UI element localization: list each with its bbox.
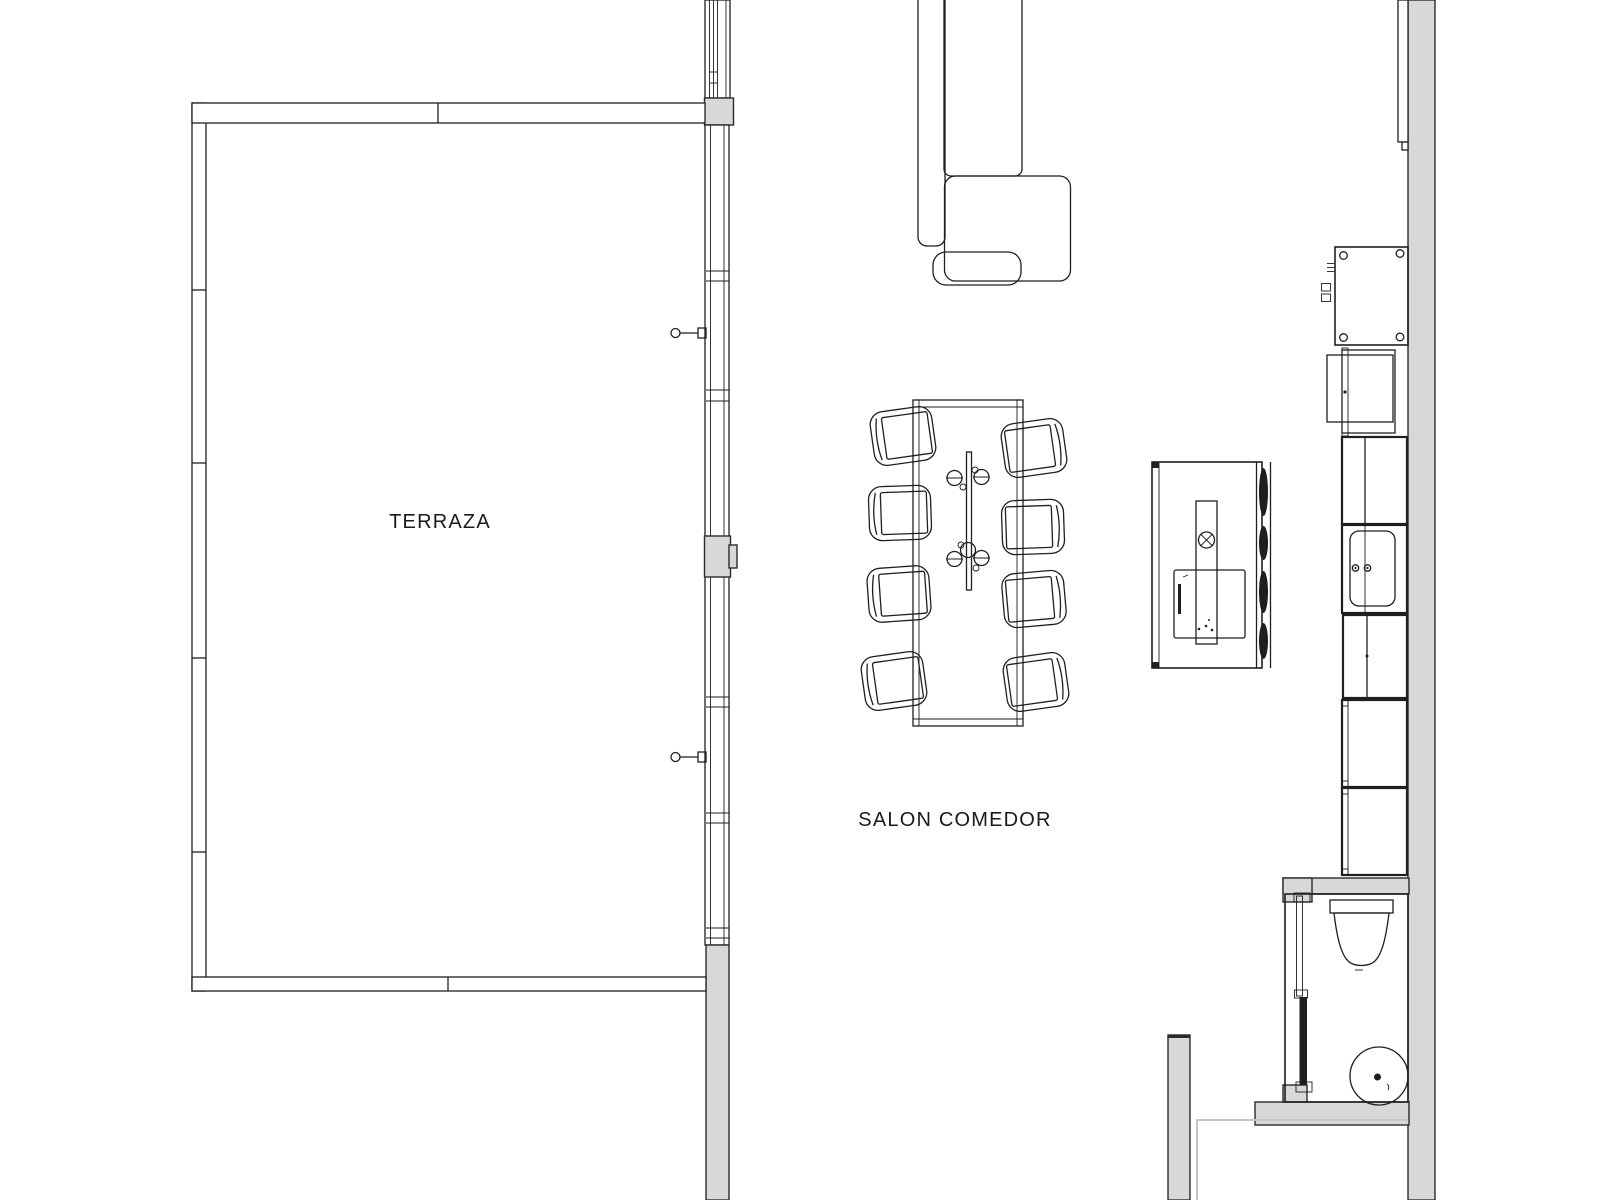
- salon-comedor-label: SALON COMEDOR: [858, 809, 1051, 831]
- bathroom: [1255, 878, 1409, 1125]
- kitchen-sink: [1342, 525, 1407, 613]
- wood-stove: [1152, 462, 1271, 668]
- dining-chair: [1001, 499, 1065, 555]
- stove-flue: [1196, 501, 1217, 644]
- sofa-cushion: [933, 252, 1021, 285]
- terrace-left-wall: [192, 103, 206, 991]
- window-wall: [671, 0, 737, 1200]
- dining-chair: [866, 565, 932, 623]
- l-shaped-sofa: [918, 0, 1071, 285]
- door-handle-top: [671, 328, 706, 338]
- floor-plan: TERRAZA SALON COMEDOR: [0, 0, 1600, 1200]
- tall-kitchen-unit: [1322, 247, 1409, 345]
- floor-plan-page: TERRAZA SALON COMEDOR: [0, 0, 1600, 1200]
- kitchen: [1322, 247, 1409, 875]
- partition-wall: [1168, 1035, 1190, 1200]
- dining-chair: [1001, 569, 1067, 628]
- terrace-top-wall: [192, 103, 705, 123]
- stove-vent-symbol: [1199, 532, 1215, 548]
- dining-chair: [860, 650, 929, 712]
- dining-set: [860, 400, 1071, 726]
- sliding-door: [1294, 893, 1312, 1092]
- stove-louver: [1257, 462, 1271, 668]
- sofa-corner: [945, 176, 1071, 281]
- dining-chair: [1000, 417, 1069, 479]
- bathroom-bottom-wall: [1255, 1102, 1409, 1125]
- terraza-label: TERRAZA: [389, 511, 491, 533]
- wall-panel: [1398, 0, 1408, 142]
- right-exterior-wall: [1398, 0, 1435, 1200]
- terrace: [192, 103, 706, 991]
- dining-chair: [868, 485, 932, 541]
- sofa-back-strip: [918, 0, 945, 246]
- stove-firebox: [1174, 570, 1245, 638]
- sofa-seat: [944, 0, 1022, 176]
- table-centerpiece: [946, 452, 990, 590]
- terrace-bottom-wall: [192, 977, 706, 991]
- kitchen-module: [1327, 348, 1395, 436]
- washbasin: [1330, 900, 1393, 970]
- interior-wall-bottom: [706, 945, 729, 1200]
- dining-chair: [869, 405, 938, 467]
- round-basin: [1350, 1047, 1408, 1105]
- wall-pier-middle: [705, 536, 738, 577]
- kitchen-counter: [1342, 437, 1407, 875]
- wall-pier-top: [705, 98, 734, 125]
- sub-room-outline: [1197, 1120, 1408, 1200]
- dining-chair: [1002, 651, 1071, 713]
- door-handle-bottom: [671, 752, 706, 762]
